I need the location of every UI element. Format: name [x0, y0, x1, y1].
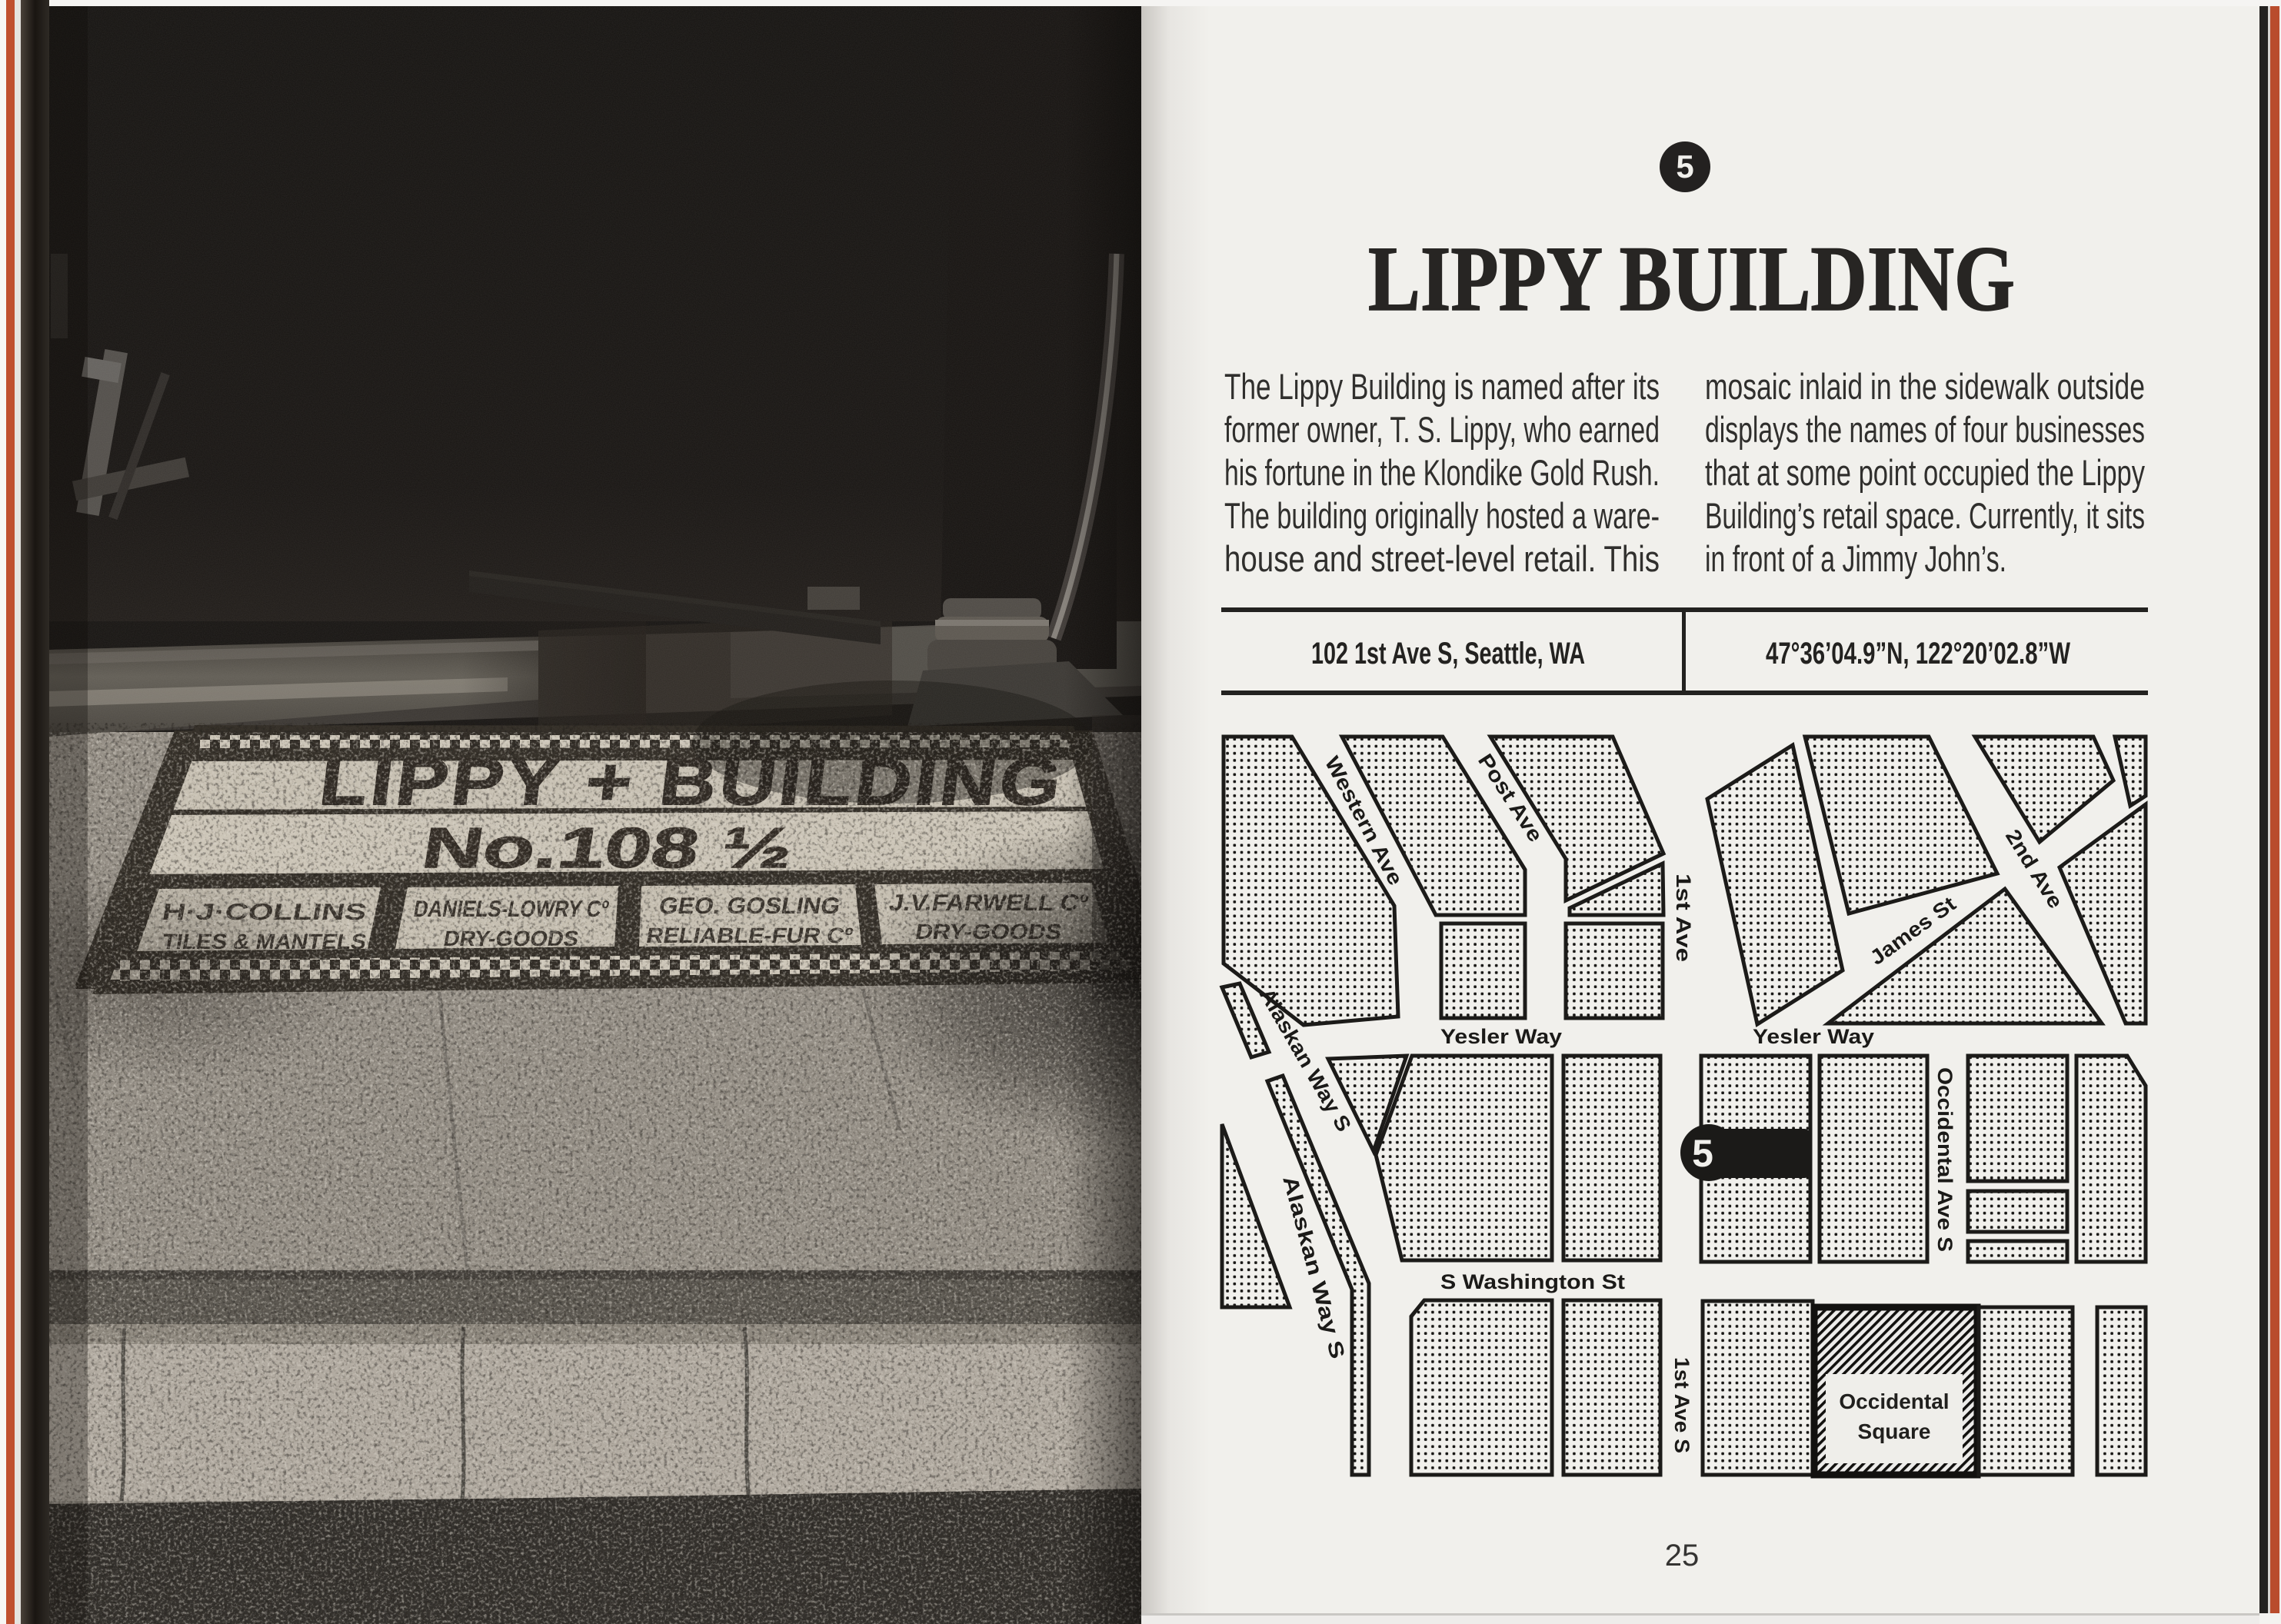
svg-text:Yesler Way: Yesler Way	[1440, 1025, 1562, 1048]
svg-text:Yesler Way: Yesler Way	[1753, 1025, 1874, 1048]
svg-text:5: 5	[1692, 1132, 1713, 1175]
svg-text:102 1st Ave S, Seattle, WA: 102 1st Ave S, Seattle, WA	[1311, 637, 1585, 671]
svg-text:LIPPY BUILDING: LIPPY BUILDING	[1368, 228, 2015, 331]
svg-text:house and street-level retail.: house and street-level retail. This	[1224, 538, 1660, 579]
svg-text:1st Ave: 1st Ave	[1672, 874, 1695, 962]
svg-text:Square: Square	[1858, 1419, 1931, 1443]
svg-text:Occidental: Occidental	[1839, 1389, 1949, 1413]
svg-text:Occidental Ave S: Occidental Ave S	[1933, 1067, 1956, 1252]
svg-text:in front of a Jimmy John’s.: in front of a Jimmy John’s.	[1705, 538, 2006, 579]
svg-text:former owner, T. S. Lippy, who: former owner, T. S. Lippy, who earned	[1224, 409, 1660, 450]
svg-text:Building’s retail space. Curre: Building’s retail space. Currently, it s…	[1705, 495, 2145, 536]
svg-text:47°36’04.9”N, 122°20’02.8”W: 47°36’04.9”N, 122°20’02.8”W	[1766, 637, 2070, 671]
svg-text:25: 25	[1665, 1539, 1700, 1572]
svg-text:The Lippy Building is named af: The Lippy Building is named after its	[1224, 366, 1660, 407]
svg-text:1st Ave S: 1st Ave S	[1670, 1357, 1693, 1453]
svg-text:S Washington St: S Washington St	[1440, 1270, 1625, 1293]
svg-text:5: 5	[1676, 148, 1693, 185]
svg-text:mosaic inlaid in the sidewalk: mosaic inlaid in the sidewalk outside	[1705, 366, 2145, 407]
svg-text:that at some point occupied th: that at some point occupied the Lippy	[1705, 452, 2145, 493]
svg-text:displays the names of four bus: displays the names of four businesses	[1705, 409, 2145, 450]
svg-text:The building originally hosted: The building originally hosted a ware-	[1224, 495, 1660, 536]
svg-text:his fortune in the Klondike Go: his fortune in the Klondike Gold Rush.	[1224, 452, 1660, 493]
